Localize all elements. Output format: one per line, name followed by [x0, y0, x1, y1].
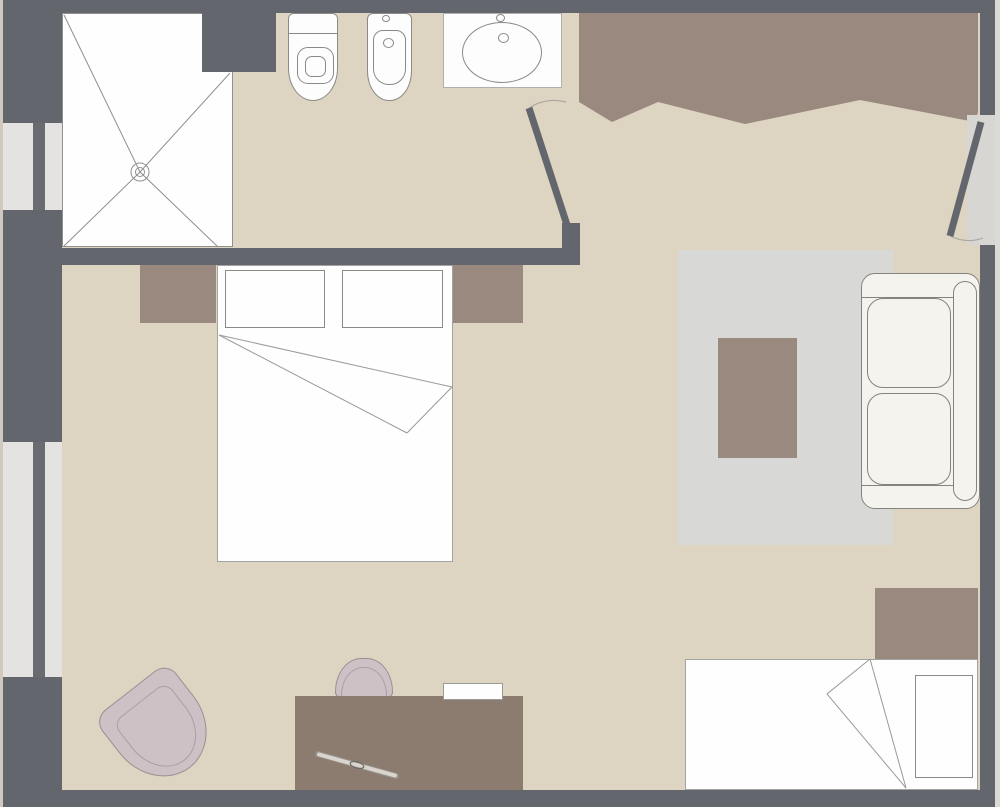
nightstand-right [453, 265, 523, 323]
sink-basin [462, 22, 542, 83]
window-lower-glass-line [33, 442, 45, 677]
sofa-cushion-2 [867, 393, 951, 485]
sofa-cushion-1 [867, 298, 951, 388]
desk [295, 696, 523, 793]
floor-plan [0, 0, 1000, 807]
pillow-right [342, 270, 443, 328]
bidet-drain [383, 38, 394, 48]
paper-sheet [443, 683, 503, 700]
coffee-table [718, 338, 797, 458]
outside-strip-right [995, 0, 1000, 807]
nightstand-left [140, 265, 216, 323]
wall-bottom [62, 790, 995, 807]
wall-left-middle [3, 210, 62, 442]
pillow-single-bed [915, 675, 973, 778]
sofa-backrest [953, 281, 977, 501]
sink-drain [498, 33, 509, 43]
armchair [105, 672, 213, 785]
sofa-armrest-bottom [861, 485, 954, 486]
wall-right-upper [980, 13, 995, 115]
bathroom-wall-block [202, 13, 276, 72]
pillow-left [225, 270, 325, 328]
bidet-faucet [382, 15, 390, 22]
sink-faucet [496, 14, 505, 22]
toilet-tank-line [288, 33, 338, 34]
wall-left-upper [3, 13, 62, 123]
armchair-body [93, 661, 227, 796]
toilet-bowl [305, 56, 326, 77]
window-upper-glass-line [33, 123, 45, 210]
wall-bathroom-bedroom [62, 248, 580, 265]
wall-right-lower [980, 245, 995, 790]
nightstand-single-bed [875, 588, 978, 659]
armchair-seat [112, 681, 211, 781]
wall-hall-corner-stub [562, 223, 580, 248]
wall-left-lower [3, 677, 62, 807]
wardrobe [579, 13, 978, 125]
wall-top [3, 0, 995, 13]
entrance-doorway-recess [967, 115, 995, 245]
